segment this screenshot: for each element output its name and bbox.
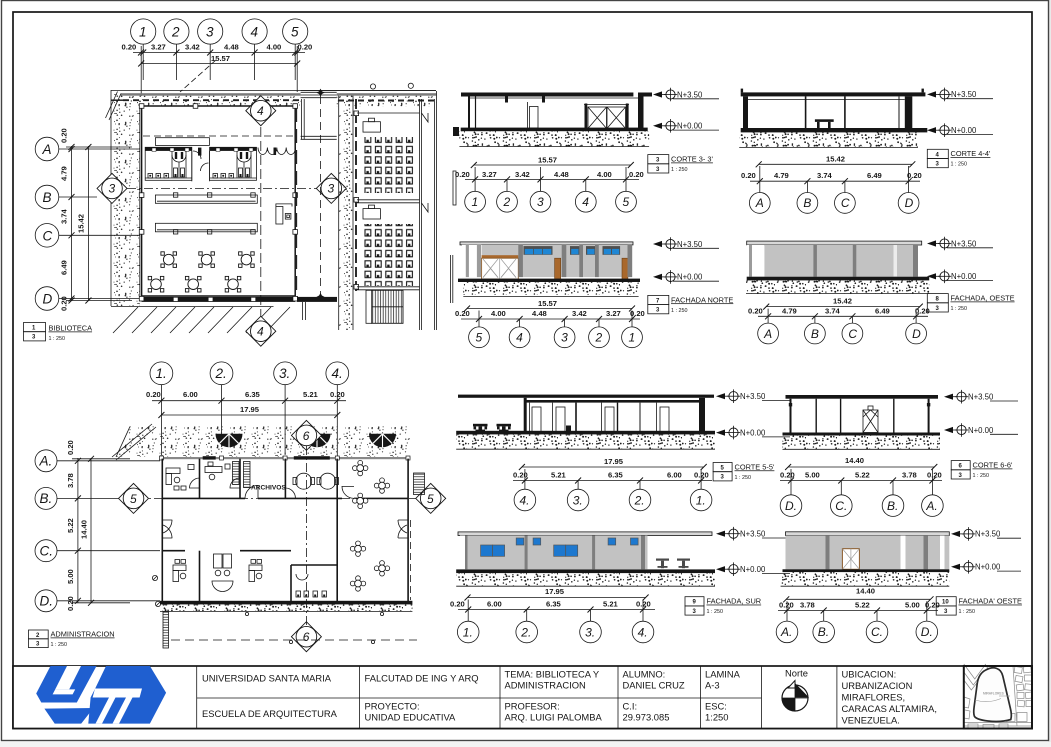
svg-text:B: B <box>43 190 52 205</box>
svg-text:3.78: 3.78 <box>800 601 815 610</box>
svg-text:N+3.50: N+3.50 <box>677 90 703 99</box>
svg-text:ADMINISTRACION: ADMINISTRACION <box>51 630 115 639</box>
svg-text:URBANIZACION: URBANIZACION <box>842 680 913 691</box>
svg-text:5.00: 5.00 <box>805 471 820 480</box>
svg-text:1 : 250: 1 : 250 <box>959 609 976 615</box>
svg-text:0.20: 0.20 <box>330 390 345 399</box>
svg-text:15.57: 15.57 <box>538 155 557 164</box>
svg-text:N+0.00: N+0.00 <box>740 428 766 437</box>
svg-text:1: 1 <box>629 331 636 345</box>
svg-text:4.79: 4.79 <box>774 171 789 180</box>
svg-text:17.95: 17.95 <box>545 587 565 596</box>
svg-text:C: C <box>848 327 857 341</box>
svg-text:4: 4 <box>582 195 589 209</box>
svg-text:5: 5 <box>130 492 137 506</box>
svg-text:6.00: 6.00 <box>487 600 502 609</box>
svg-text:A.: A. <box>925 499 937 513</box>
svg-text:UBICACION:: UBICACION: <box>842 669 897 680</box>
svg-text:2.: 2. <box>520 625 531 639</box>
svg-text:A: A <box>755 196 764 210</box>
svg-text:C.I:: C.I: <box>623 701 638 712</box>
svg-text:ALUMNO:: ALUMNO: <box>623 669 666 680</box>
svg-text:FACHADA' OESTE: FACHADA' OESTE <box>959 597 1022 606</box>
svg-text:N+3.50: N+3.50 <box>975 530 1001 539</box>
svg-text:UNIVERSIDAD SANTA MARIA: UNIVERSIDAD SANTA MARIA <box>202 673 332 684</box>
svg-text:0.20: 0.20 <box>629 170 644 179</box>
svg-text:3.27: 3.27 <box>606 309 621 318</box>
svg-text:1:250: 1:250 <box>705 712 728 723</box>
svg-text:3: 3 <box>328 182 335 196</box>
svg-text:0.20: 0.20 <box>60 128 69 143</box>
svg-text:3.42: 3.42 <box>185 43 200 52</box>
svg-text:6.49: 6.49 <box>875 306 890 315</box>
svg-text:2: 2 <box>171 25 180 40</box>
svg-text:DANIEL CRUZ: DANIEL CRUZ <box>623 680 685 691</box>
svg-text:FACHADA, SUR: FACHADA, SUR <box>707 597 762 606</box>
svg-text:LAMINA: LAMINA <box>705 669 741 680</box>
svg-text:6: 6 <box>303 630 310 644</box>
svg-text:N+3.50: N+3.50 <box>740 392 766 401</box>
svg-text:4.00: 4.00 <box>491 309 506 318</box>
svg-text:2.: 2. <box>634 493 645 507</box>
svg-text:3: 3 <box>561 331 568 345</box>
svg-text:3.27: 3.27 <box>151 43 166 52</box>
svg-text:0.20: 0.20 <box>741 171 756 180</box>
svg-text:2.: 2. <box>215 366 227 381</box>
svg-text:MIRAFLORES,: MIRAFLORES, <box>842 692 906 703</box>
svg-text:6.00: 6.00 <box>183 390 198 399</box>
svg-text:4: 4 <box>257 104 264 118</box>
svg-text:3.78: 3.78 <box>902 471 917 480</box>
svg-text:5: 5 <box>427 492 434 506</box>
svg-text:1 : 250: 1 : 250 <box>49 336 66 342</box>
svg-text:5.00: 5.00 <box>66 569 75 584</box>
svg-text:4: 4 <box>251 25 259 40</box>
svg-text:FACHADA NORTE: FACHADA NORTE <box>671 295 733 304</box>
svg-text:0.20: 0.20 <box>513 471 528 480</box>
svg-text:3.74: 3.74 <box>817 171 833 180</box>
svg-text:D.: D. <box>921 625 933 639</box>
svg-text:N+0.00: N+0.00 <box>677 273 703 282</box>
svg-text:Norte: Norte <box>785 668 808 679</box>
svg-text:1.: 1. <box>696 493 706 507</box>
svg-text:N+3.50: N+3.50 <box>951 239 977 248</box>
svg-text:0.20: 0.20 <box>450 600 465 609</box>
svg-text:N+3.50: N+3.50 <box>740 530 766 539</box>
svg-text:3.78: 3.78 <box>66 473 75 488</box>
svg-text:B.: B. <box>887 499 898 513</box>
svg-text:6.35: 6.35 <box>608 471 624 480</box>
svg-text:2: 2 <box>595 331 603 345</box>
svg-text:1 : 250: 1 : 250 <box>951 306 968 312</box>
svg-text:1 : 250: 1 : 250 <box>973 473 990 479</box>
svg-text:ADMINISTRACION: ADMINISTRACION <box>505 680 586 691</box>
svg-text:4.00: 4.00 <box>597 170 612 179</box>
svg-text:FACHADA, OESTE: FACHADA, OESTE <box>951 294 1015 303</box>
svg-text:0.20: 0.20 <box>748 306 763 315</box>
svg-text:4.: 4. <box>332 366 343 381</box>
svg-text:3: 3 <box>537 195 544 209</box>
svg-text:A: A <box>42 142 52 157</box>
svg-text:1 : 250: 1 : 250 <box>735 475 752 481</box>
svg-text:6.00: 6.00 <box>667 471 682 480</box>
svg-text:5.21: 5.21 <box>603 600 619 609</box>
svg-text:N+3.50: N+3.50 <box>951 90 977 99</box>
svg-text:1: 1 <box>139 25 147 40</box>
svg-text:D: D <box>43 292 53 307</box>
svg-text:D.: D. <box>40 593 54 608</box>
svg-text:1: 1 <box>472 195 479 209</box>
svg-text:B.: B. <box>818 625 829 639</box>
svg-text:0.20: 0.20 <box>915 306 930 315</box>
svg-text:4.79: 4.79 <box>60 166 69 181</box>
svg-text:4.48: 4.48 <box>554 170 569 179</box>
svg-text:CORTE 3- 3': CORTE 3- 3' <box>671 155 714 164</box>
svg-text:3.74: 3.74 <box>825 306 841 315</box>
svg-text:15.42: 15.42 <box>77 214 86 233</box>
svg-text:0.20: 0.20 <box>66 596 75 611</box>
svg-text:N+3.50: N+3.50 <box>968 393 994 402</box>
svg-text:D: D <box>912 327 921 341</box>
svg-text:N+3.50: N+3.50 <box>677 240 703 249</box>
svg-text:N+0.00: N+0.00 <box>968 426 994 435</box>
svg-text:D: D <box>905 196 914 210</box>
svg-text:B: B <box>811 327 819 341</box>
svg-text:5: 5 <box>291 25 299 40</box>
svg-text:VENEZUELA.: VENEZUELA. <box>842 715 900 726</box>
svg-text:B.: B. <box>40 491 53 506</box>
svg-text:N+0.00: N+0.00 <box>677 122 703 131</box>
svg-text:0.20: 0.20 <box>925 601 940 610</box>
svg-text:6: 6 <box>303 429 310 443</box>
svg-text:CORTE 5-5': CORTE 5-5' <box>735 462 775 471</box>
svg-text:UNIDAD EDUCATIVA: UNIDAD EDUCATIVA <box>365 712 457 723</box>
svg-text:1 : 250: 1 : 250 <box>707 609 724 615</box>
svg-text:1 : 250: 1 : 250 <box>951 162 968 168</box>
svg-text:3.42: 3.42 <box>572 309 587 318</box>
svg-text:CORTE 4-4': CORTE 4-4' <box>951 149 991 158</box>
svg-text:TEMA: BIBLIOTECA Y: TEMA: BIBLIOTECA Y <box>505 669 600 680</box>
svg-text:4.48: 4.48 <box>224 43 239 52</box>
svg-text:0.20: 0.20 <box>455 170 470 179</box>
svg-text:4.00: 4.00 <box>267 43 282 52</box>
svg-text:B: B <box>803 196 811 210</box>
svg-text:1.: 1. <box>463 625 473 639</box>
svg-text:3.: 3. <box>585 625 595 639</box>
svg-text:ESC:: ESC: <box>705 701 727 712</box>
svg-text:1 : 250: 1 : 250 <box>51 642 68 648</box>
svg-text:C.: C. <box>871 625 883 639</box>
svg-text:5.21: 5.21 <box>551 471 567 480</box>
svg-text:10: 10 <box>942 600 949 606</box>
svg-text:14.40: 14.40 <box>856 586 875 595</box>
svg-text:29.973.085: 29.973.085 <box>623 712 670 723</box>
svg-text:0.20: 0.20 <box>779 601 794 610</box>
svg-text:15.42: 15.42 <box>833 296 852 305</box>
svg-text:C.: C. <box>835 499 847 513</box>
svg-text:3.: 3. <box>279 366 290 381</box>
svg-text:6.35: 6.35 <box>245 390 261 399</box>
svg-text:A.: A. <box>780 625 792 639</box>
svg-text:6.49: 6.49 <box>60 260 69 275</box>
svg-text:0.20: 0.20 <box>907 171 922 180</box>
svg-text:C: C <box>841 196 850 210</box>
svg-text:5.22: 5.22 <box>855 601 870 610</box>
svg-text:6.49: 6.49 <box>867 171 882 180</box>
svg-text:A.: A. <box>39 453 53 468</box>
svg-text:1 : 250: 1 : 250 <box>671 308 688 314</box>
svg-text:A-3: A-3 <box>705 680 720 691</box>
svg-text:CORTE 6-6': CORTE 6-6' <box>973 461 1013 470</box>
svg-text:14.40: 14.40 <box>845 456 864 465</box>
svg-text:3.: 3. <box>573 493 583 507</box>
svg-text:4: 4 <box>257 325 264 339</box>
svg-text:5.22: 5.22 <box>855 471 870 480</box>
svg-text:0.20: 0.20 <box>60 296 69 311</box>
svg-text:N+0.00: N+0.00 <box>951 272 977 281</box>
svg-text:4.: 4. <box>638 625 648 639</box>
svg-text:PROFESOR:: PROFESOR: <box>505 701 560 712</box>
svg-text:3: 3 <box>109 182 116 196</box>
svg-text:MIRAFLORES: MIRAFLORES <box>983 692 1004 696</box>
svg-text:15.57: 15.57 <box>538 299 557 308</box>
svg-text:0.20: 0.20 <box>146 390 161 399</box>
svg-text:14.40: 14.40 <box>80 520 89 539</box>
svg-text:CARACAS ALTAMIRA,: CARACAS ALTAMIRA, <box>842 703 938 714</box>
svg-text:N+0.00: N+0.00 <box>975 563 1001 572</box>
svg-text:6.35: 6.35 <box>546 600 562 609</box>
svg-text:0.20: 0.20 <box>122 43 137 52</box>
svg-text:FALCUTAD DE ING Y ARQ: FALCUTAD DE ING Y ARQ <box>365 673 479 684</box>
svg-text:4: 4 <box>516 331 523 345</box>
svg-text:5.22: 5.22 <box>66 518 75 533</box>
svg-text:17.95: 17.95 <box>604 457 624 466</box>
svg-text:C: C <box>43 228 53 243</box>
svg-text:5.21: 5.21 <box>303 390 319 399</box>
svg-text:C.: C. <box>40 543 54 558</box>
svg-text:ARQ. LUIGI PALOMBA: ARQ. LUIGI PALOMBA <box>505 712 603 723</box>
svg-text:4.48: 4.48 <box>532 309 547 318</box>
svg-text:PROYECTO:: PROYECTO: <box>365 701 420 712</box>
svg-text:5: 5 <box>476 331 483 345</box>
svg-text:17.95: 17.95 <box>240 405 260 414</box>
svg-text:0.20: 0.20 <box>455 309 470 318</box>
svg-text:BIBLIOTECA: BIBLIOTECA <box>49 324 93 333</box>
svg-text:4.: 4. <box>520 493 530 507</box>
svg-text:ESCUELA DE ARQUITECTURA: ESCUELA DE ARQUITECTURA <box>202 708 338 719</box>
svg-text:3: 3 <box>206 25 214 40</box>
svg-text:0.20: 0.20 <box>66 440 75 455</box>
svg-text:3.42: 3.42 <box>515 170 530 179</box>
svg-text:ARCHIVOS: ARCHIVOS <box>251 485 286 492</box>
svg-text:N+0.00: N+0.00 <box>740 565 766 574</box>
svg-text:5: 5 <box>623 195 630 209</box>
svg-text:3.74: 3.74 <box>60 208 69 224</box>
svg-text:3.27: 3.27 <box>482 170 497 179</box>
svg-text:1 : 250: 1 : 250 <box>671 167 688 173</box>
svg-text:A: A <box>763 327 772 341</box>
svg-text:4.79: 4.79 <box>782 306 797 315</box>
svg-text:D.: D. <box>785 499 797 513</box>
svg-text:N+0.00: N+0.00 <box>951 126 977 135</box>
svg-text:15.42: 15.42 <box>826 155 845 164</box>
svg-text:2: 2 <box>503 195 511 209</box>
svg-text:1.: 1. <box>156 366 167 381</box>
svg-text:5.00: 5.00 <box>905 601 920 610</box>
